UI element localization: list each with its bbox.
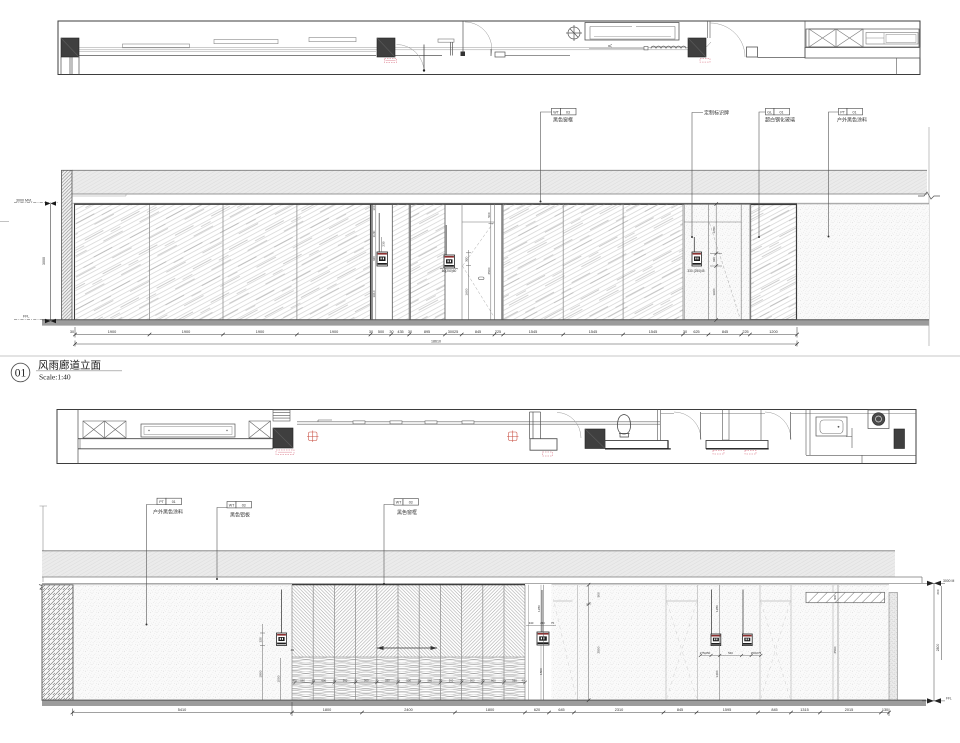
- svg-text:540: 540: [728, 651, 733, 655]
- svg-text:895: 895: [424, 330, 430, 334]
- svg-text:620: 620: [534, 708, 540, 712]
- svg-text:20: 20: [354, 678, 357, 682]
- svg-text:130: 130: [882, 708, 888, 712]
- svg-text:20: 20: [333, 678, 336, 682]
- svg-text:320: 320: [464, 256, 468, 261]
- svg-text:2500: 2500: [597, 646, 601, 653]
- svg-text:845: 845: [722, 330, 728, 334]
- svg-text:200: 200: [936, 589, 940, 594]
- svg-text:20: 20: [503, 678, 506, 682]
- svg-text:30: 30: [408, 330, 412, 334]
- svg-text:03: 03: [566, 110, 570, 114]
- svg-text:20: 20: [397, 678, 400, 682]
- svg-text:500: 500: [487, 212, 491, 217]
- svg-text:户外黑色涂料: 户外黑色涂料: [837, 117, 867, 124]
- svg-text:560: 560: [470, 678, 475, 682]
- svg-text:WT: WT: [229, 504, 235, 508]
- svg-text:30: 30: [389, 330, 393, 334]
- svg-text:560: 560: [343, 678, 348, 682]
- svg-text:2310: 2310: [615, 708, 623, 712]
- svg-text:1315: 1315: [800, 708, 808, 712]
- svg-text:330 (250)45: 330 (250)45: [687, 269, 704, 273]
- svg-text:225: 225: [742, 330, 748, 334]
- svg-text:1545: 1545: [529, 330, 537, 334]
- svg-text:1545: 1545: [589, 330, 597, 334]
- svg-text:20: 20: [460, 678, 463, 682]
- svg-text:550: 550: [385, 678, 390, 682]
- svg-text:1900: 1900: [108, 330, 116, 334]
- svg-text:1600: 1600: [712, 288, 716, 295]
- svg-text:645: 645: [558, 708, 564, 712]
- svg-text:01: 01: [172, 500, 176, 504]
- svg-text:20: 20: [418, 678, 421, 682]
- svg-text:30: 30: [369, 330, 373, 334]
- svg-text:黑色窗框: 黑色窗框: [553, 117, 573, 124]
- svg-text:560: 560: [428, 678, 433, 682]
- svg-text:风雨廊道立面: 风雨廊道立面: [38, 359, 101, 372]
- svg-text:定制标识牌: 定制标识牌: [704, 110, 729, 117]
- svg-text:PT: PT: [159, 500, 164, 504]
- svg-text:黑色窗框: 黑色窗框: [397, 509, 417, 516]
- svg-text:1800: 1800: [258, 670, 262, 677]
- svg-text:1900: 1900: [330, 330, 338, 334]
- svg-text:20: 20: [312, 678, 315, 682]
- svg-text:FFL: FFL: [946, 697, 952, 701]
- svg-text:FFL: FFL: [23, 315, 29, 319]
- svg-text:435: 435: [397, 330, 403, 334]
- svg-text:100: 100: [372, 205, 376, 210]
- svg-text:GL: GL: [767, 110, 772, 114]
- svg-text:340: 340: [529, 621, 534, 625]
- svg-text:3000: 3000: [42, 257, 46, 265]
- svg-text:1400: 1400: [715, 670, 719, 677]
- svg-text:2400: 2400: [404, 708, 412, 712]
- svg-text:2500: 2500: [833, 646, 837, 653]
- svg-text:03: 03: [409, 501, 413, 505]
- svg-text:600: 600: [322, 678, 327, 682]
- svg-text:1800: 1800: [323, 708, 331, 712]
- svg-text:845: 845: [677, 708, 683, 712]
- svg-text:20: 20: [481, 678, 484, 682]
- svg-text:超白钢化玻璃: 超白钢化玻璃: [765, 117, 795, 124]
- svg-text:1545: 1545: [649, 330, 657, 334]
- svg-text:560: 560: [300, 678, 305, 682]
- svg-text:230: 230: [540, 621, 545, 625]
- svg-text:1280: 1280: [537, 605, 541, 612]
- svg-text:320: 320: [258, 637, 262, 642]
- svg-text:2800: 2800: [936, 644, 940, 652]
- svg-text:5410: 5410: [178, 708, 186, 712]
- svg-text:3000 MVL: 3000 MVL: [16, 199, 32, 203]
- svg-text:230: 230: [382, 241, 386, 246]
- svg-text:户外黑色涂料: 户外黑色涂料: [153, 508, 183, 515]
- svg-text:1610: 1610: [372, 290, 376, 297]
- svg-text:01: 01: [853, 110, 857, 114]
- svg-text:20: 20: [439, 678, 442, 682]
- svg-text:1000: 1000: [276, 675, 280, 682]
- svg-text:Scale:1:40: Scale:1:40: [39, 373, 71, 382]
- svg-text:320: 320: [712, 257, 716, 262]
- svg-text:黑色铝板: 黑色铝板: [230, 512, 250, 519]
- svg-text:225: 225: [495, 330, 501, 334]
- svg-text:3000 M: 3000 M: [943, 579, 954, 583]
- svg-text:560: 560: [364, 678, 369, 682]
- svg-text:1280: 1280: [712, 226, 716, 233]
- svg-text:40: 40: [291, 648, 295, 652]
- svg-text:WT: WT: [396, 501, 402, 505]
- svg-text:1280: 1280: [715, 605, 719, 612]
- svg-text:01: 01: [15, 368, 27, 380]
- svg-text:1200: 1200: [769, 330, 777, 334]
- svg-text:30025: 30025: [448, 330, 459, 334]
- svg-text:845: 845: [771, 708, 777, 712]
- svg-text:500: 500: [406, 678, 411, 682]
- svg-text:1600: 1600: [464, 288, 468, 295]
- svg-text:320: 320: [372, 256, 376, 261]
- svg-text:1900: 1900: [256, 330, 264, 334]
- svg-text:20: 20: [375, 678, 378, 682]
- svg-text:30: 30: [70, 330, 74, 334]
- svg-text:18610: 18610: [431, 340, 441, 344]
- svg-text:01: 01: [780, 110, 784, 114]
- svg-text:PT: PT: [840, 110, 845, 114]
- svg-text:40: 40: [522, 678, 525, 682]
- svg-text:03: 03: [242, 504, 246, 508]
- svg-text:500: 500: [597, 592, 601, 597]
- svg-text:30: 30: [683, 330, 687, 334]
- svg-text:560: 560: [449, 678, 454, 682]
- svg-text:60(250)60: 60(250)60: [442, 269, 457, 273]
- svg-text:845: 845: [475, 330, 481, 334]
- svg-text:500: 500: [378, 330, 384, 334]
- svg-text:2015: 2015: [845, 708, 853, 712]
- svg-text:625: 625: [693, 330, 699, 334]
- svg-text:1595: 1595: [723, 708, 731, 712]
- svg-text:1800: 1800: [539, 668, 543, 675]
- svg-text:600: 600: [491, 678, 496, 682]
- svg-text:560: 560: [512, 678, 517, 682]
- svg-text:300: 300: [833, 595, 837, 600]
- svg-text:75: 75: [551, 621, 555, 625]
- svg-text:2500: 2500: [487, 267, 491, 274]
- svg-text:1900: 1900: [182, 330, 190, 334]
- svg-text:1800: 1800: [486, 708, 494, 712]
- svg-text:WT: WT: [553, 110, 559, 114]
- svg-text:1130: 1130: [372, 230, 376, 237]
